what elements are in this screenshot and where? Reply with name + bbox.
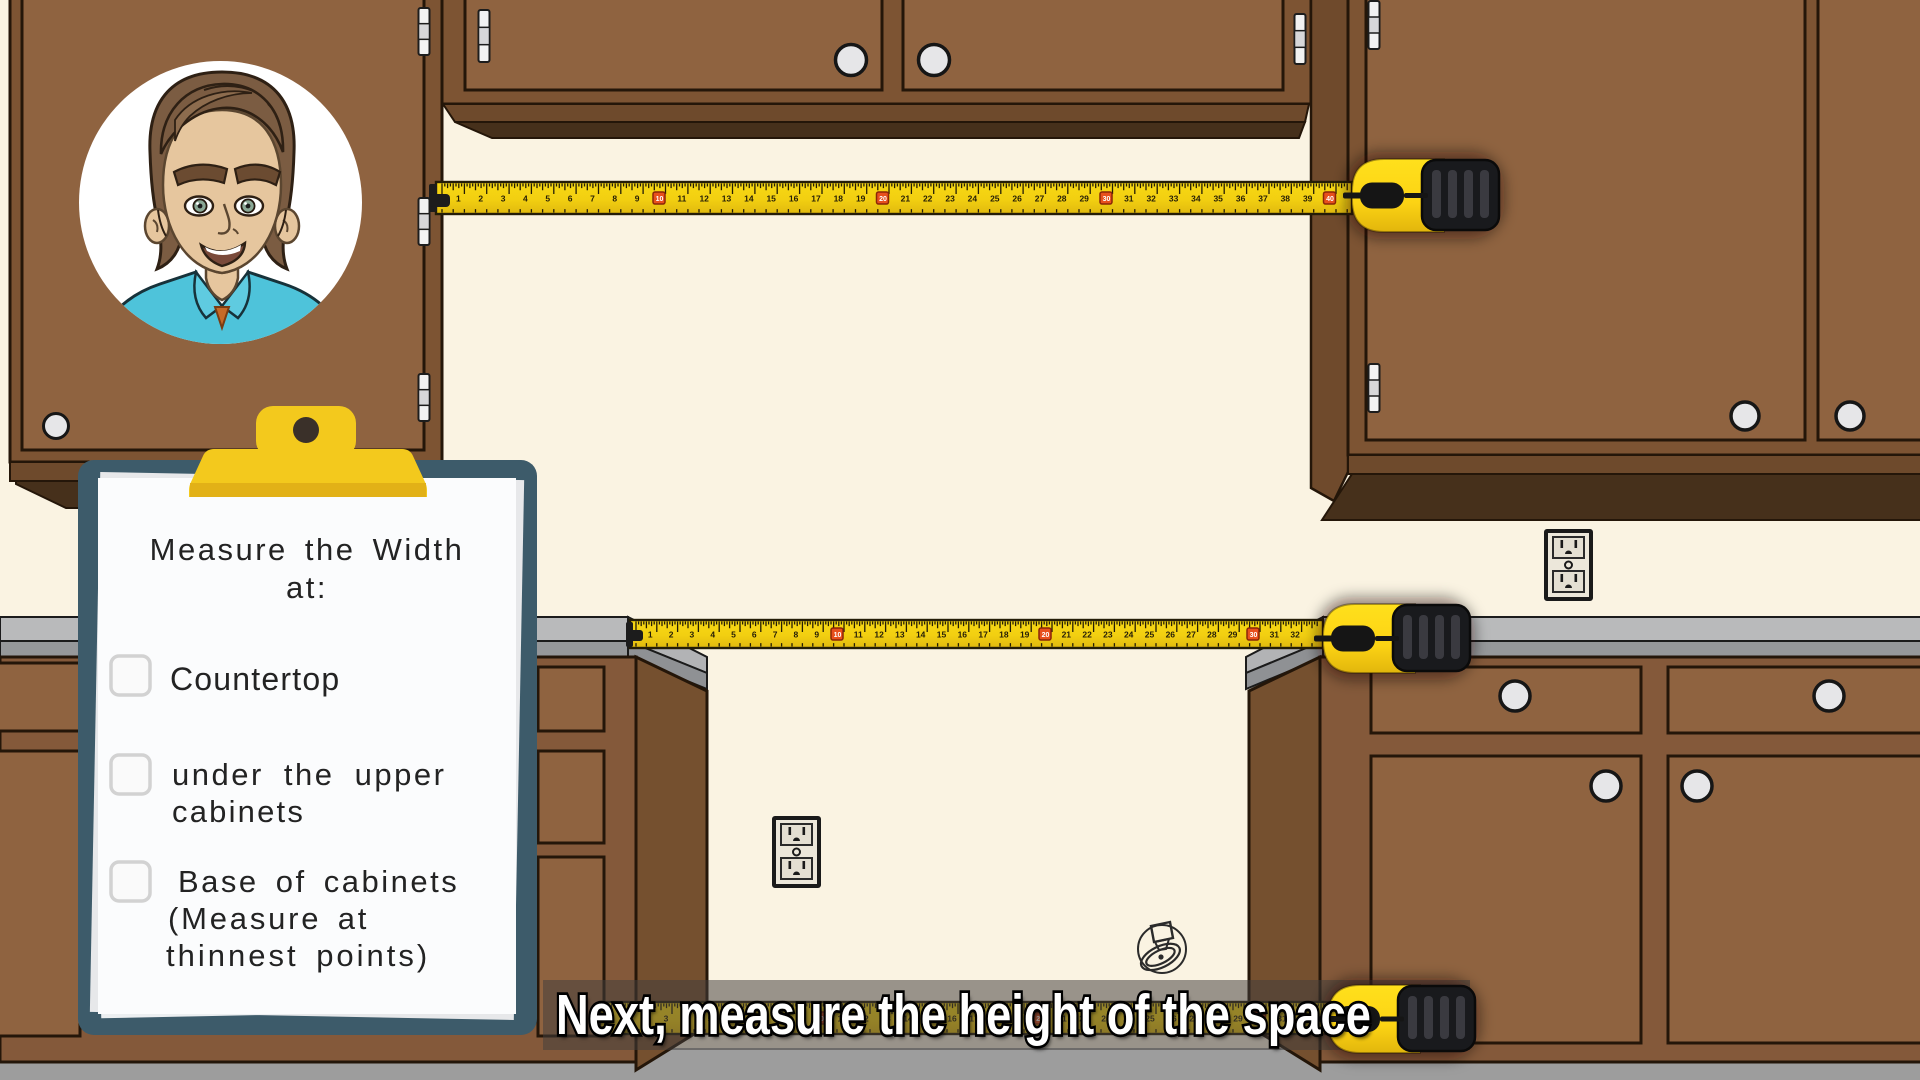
svg-text:15: 15 bbox=[937, 630, 947, 640]
svg-text:32: 32 bbox=[1146, 194, 1156, 204]
svg-text:19: 19 bbox=[856, 194, 866, 204]
svg-text:21: 21 bbox=[1062, 630, 1072, 640]
svg-text:5: 5 bbox=[731, 630, 736, 640]
svg-text:4: 4 bbox=[523, 194, 528, 204]
svg-text:27: 27 bbox=[1035, 194, 1045, 204]
svg-text:2: 2 bbox=[669, 630, 674, 640]
svg-text:16: 16 bbox=[958, 630, 968, 640]
svg-text:7: 7 bbox=[590, 194, 595, 204]
svg-text:40: 40 bbox=[1326, 196, 1334, 203]
svg-text:11: 11 bbox=[854, 630, 863, 640]
svg-text:12: 12 bbox=[874, 630, 884, 640]
svg-text:10: 10 bbox=[834, 632, 842, 639]
svg-text:35: 35 bbox=[1213, 194, 1223, 204]
svg-text:17: 17 bbox=[811, 194, 821, 204]
svg-text:1: 1 bbox=[648, 630, 653, 640]
svg-text:11: 11 bbox=[677, 194, 686, 204]
svg-text:22: 22 bbox=[923, 194, 933, 204]
svg-text:8: 8 bbox=[794, 630, 799, 640]
svg-text:1: 1 bbox=[456, 194, 461, 204]
svg-text:31: 31 bbox=[1124, 194, 1134, 204]
svg-text:27: 27 bbox=[1186, 630, 1196, 640]
svg-text:29: 29 bbox=[1079, 194, 1089, 204]
svg-text:9: 9 bbox=[635, 194, 640, 204]
svg-text:7: 7 bbox=[773, 630, 778, 640]
svg-text:24: 24 bbox=[968, 194, 978, 204]
svg-text:8: 8 bbox=[612, 194, 617, 204]
svg-text:16: 16 bbox=[789, 194, 799, 204]
svg-text:34: 34 bbox=[1191, 194, 1201, 204]
svg-text:3: 3 bbox=[690, 630, 695, 640]
svg-text:17: 17 bbox=[978, 630, 988, 640]
svg-text:28: 28 bbox=[1057, 194, 1067, 204]
svg-text:14: 14 bbox=[916, 630, 926, 640]
svg-text:23: 23 bbox=[945, 194, 955, 204]
svg-text:21: 21 bbox=[901, 194, 911, 204]
svg-text:25: 25 bbox=[1145, 630, 1155, 640]
svg-text:18: 18 bbox=[834, 194, 844, 204]
svg-text:6: 6 bbox=[568, 194, 573, 204]
svg-text:3: 3 bbox=[501, 194, 506, 204]
svg-text:20: 20 bbox=[879, 196, 887, 203]
svg-text:4: 4 bbox=[710, 630, 715, 640]
svg-text:13: 13 bbox=[722, 194, 732, 204]
svg-text:30: 30 bbox=[1103, 196, 1111, 203]
svg-text:37: 37 bbox=[1258, 194, 1268, 204]
svg-text:29: 29 bbox=[1228, 630, 1238, 640]
svg-text:28: 28 bbox=[1207, 630, 1217, 640]
svg-text:2: 2 bbox=[478, 194, 483, 204]
svg-text:38: 38 bbox=[1281, 194, 1291, 204]
svg-text:31: 31 bbox=[1270, 630, 1280, 640]
svg-text:26: 26 bbox=[1012, 194, 1022, 204]
svg-text:30: 30 bbox=[1250, 632, 1258, 639]
svg-text:14: 14 bbox=[744, 194, 754, 204]
svg-text:5: 5 bbox=[545, 194, 550, 204]
svg-text:23: 23 bbox=[1103, 630, 1113, 640]
svg-text:20: 20 bbox=[1042, 632, 1050, 639]
svg-text:6: 6 bbox=[752, 630, 757, 640]
svg-text:19: 19 bbox=[1020, 630, 1030, 640]
svg-text:25: 25 bbox=[990, 194, 1000, 204]
svg-text:32: 32 bbox=[1290, 630, 1300, 640]
svg-text:15: 15 bbox=[766, 194, 776, 204]
svg-text:24: 24 bbox=[1124, 630, 1134, 640]
svg-text:36: 36 bbox=[1236, 194, 1246, 204]
svg-text:13: 13 bbox=[895, 630, 905, 640]
svg-text:26: 26 bbox=[1166, 630, 1176, 640]
svg-text:18: 18 bbox=[999, 630, 1009, 640]
svg-text:33: 33 bbox=[1169, 194, 1179, 204]
svg-text:9: 9 bbox=[814, 630, 819, 640]
svg-text:12: 12 bbox=[699, 194, 709, 204]
svg-text:10: 10 bbox=[656, 196, 664, 203]
svg-text:22: 22 bbox=[1082, 630, 1092, 640]
svg-text:39: 39 bbox=[1303, 194, 1313, 204]
